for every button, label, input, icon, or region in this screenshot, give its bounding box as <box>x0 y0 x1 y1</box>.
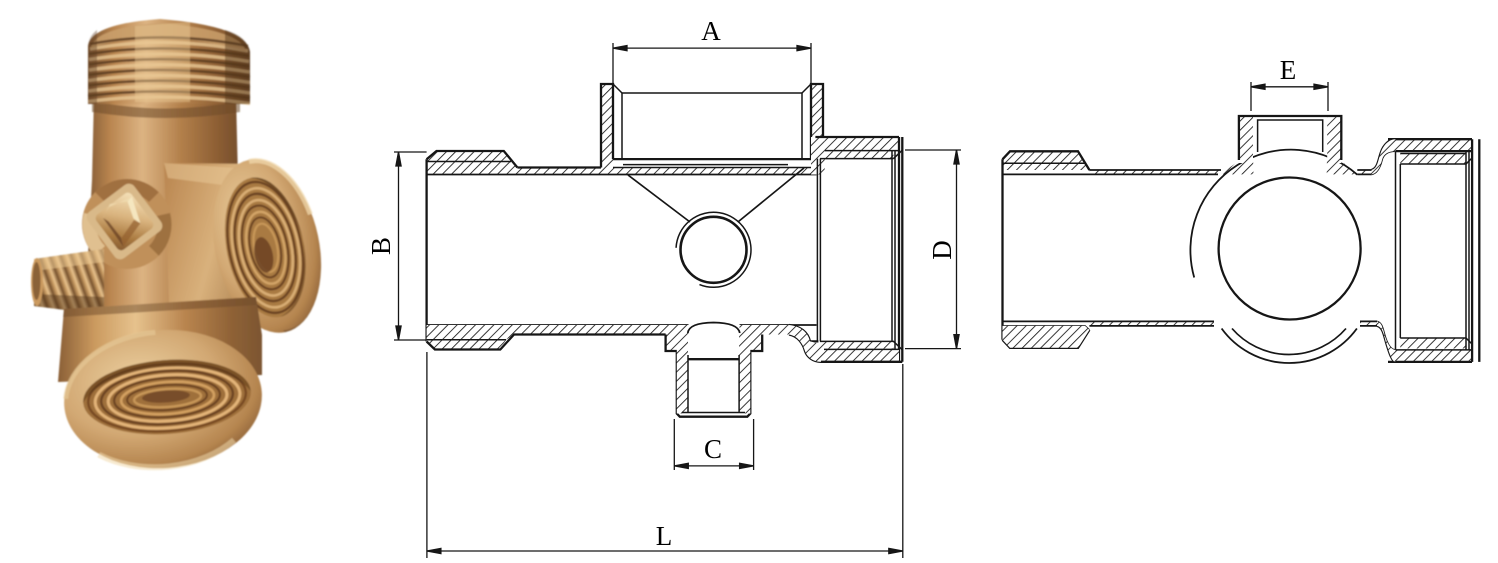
svg-text:L: L <box>656 521 673 551</box>
svg-text:A: A <box>701 16 721 46</box>
svg-text:D: D <box>927 240 957 260</box>
svg-text:B: B <box>366 237 396 255</box>
svg-text:C: C <box>704 434 722 464</box>
svg-text:E: E <box>1280 55 1297 85</box>
